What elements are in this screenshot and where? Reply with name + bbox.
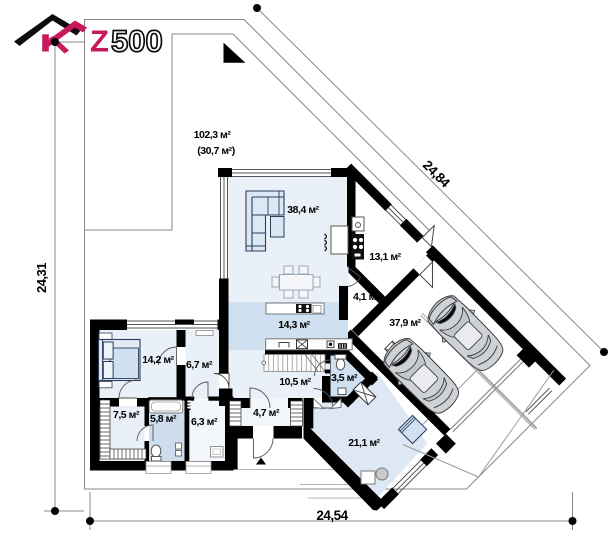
svg-text:13,1 м²: 13,1 м²: [369, 251, 401, 263]
svg-text:38,4 м²: 38,4 м²: [287, 204, 319, 216]
svg-text:5,8 м²: 5,8 м²: [150, 413, 177, 425]
svg-text:14,2 м²: 14,2 м²: [142, 354, 174, 366]
svg-text:37,9 м²: 37,9 м²: [389, 317, 421, 329]
svg-text:24,31: 24,31: [34, 263, 49, 293]
svg-text:21,1 м²: 21,1 м²: [348, 437, 380, 449]
svg-text:6,3 м²: 6,3 м²: [191, 416, 218, 428]
svg-text:102,3 м²: 102,3 м²: [194, 129, 232, 141]
svg-text:4,1 м²: 4,1 м²: [353, 291, 380, 303]
svg-text:(30,7 м²): (30,7 м²): [197, 145, 235, 157]
svg-text:3,5 м²: 3,5 м²: [331, 372, 358, 384]
svg-text:14,3 м²: 14,3 м²: [278, 319, 310, 331]
svg-text:10,5 м²: 10,5 м²: [279, 376, 311, 388]
svg-text:Z: Z: [90, 24, 109, 59]
svg-text:24,54: 24,54: [316, 508, 348, 523]
svg-text:7,5 м²: 7,5 м²: [113, 409, 140, 421]
svg-text:4,7 м²: 4,7 м²: [253, 407, 280, 419]
svg-text:6,7 м²: 6,7 м²: [186, 359, 213, 371]
svg-text:500: 500: [111, 24, 163, 59]
